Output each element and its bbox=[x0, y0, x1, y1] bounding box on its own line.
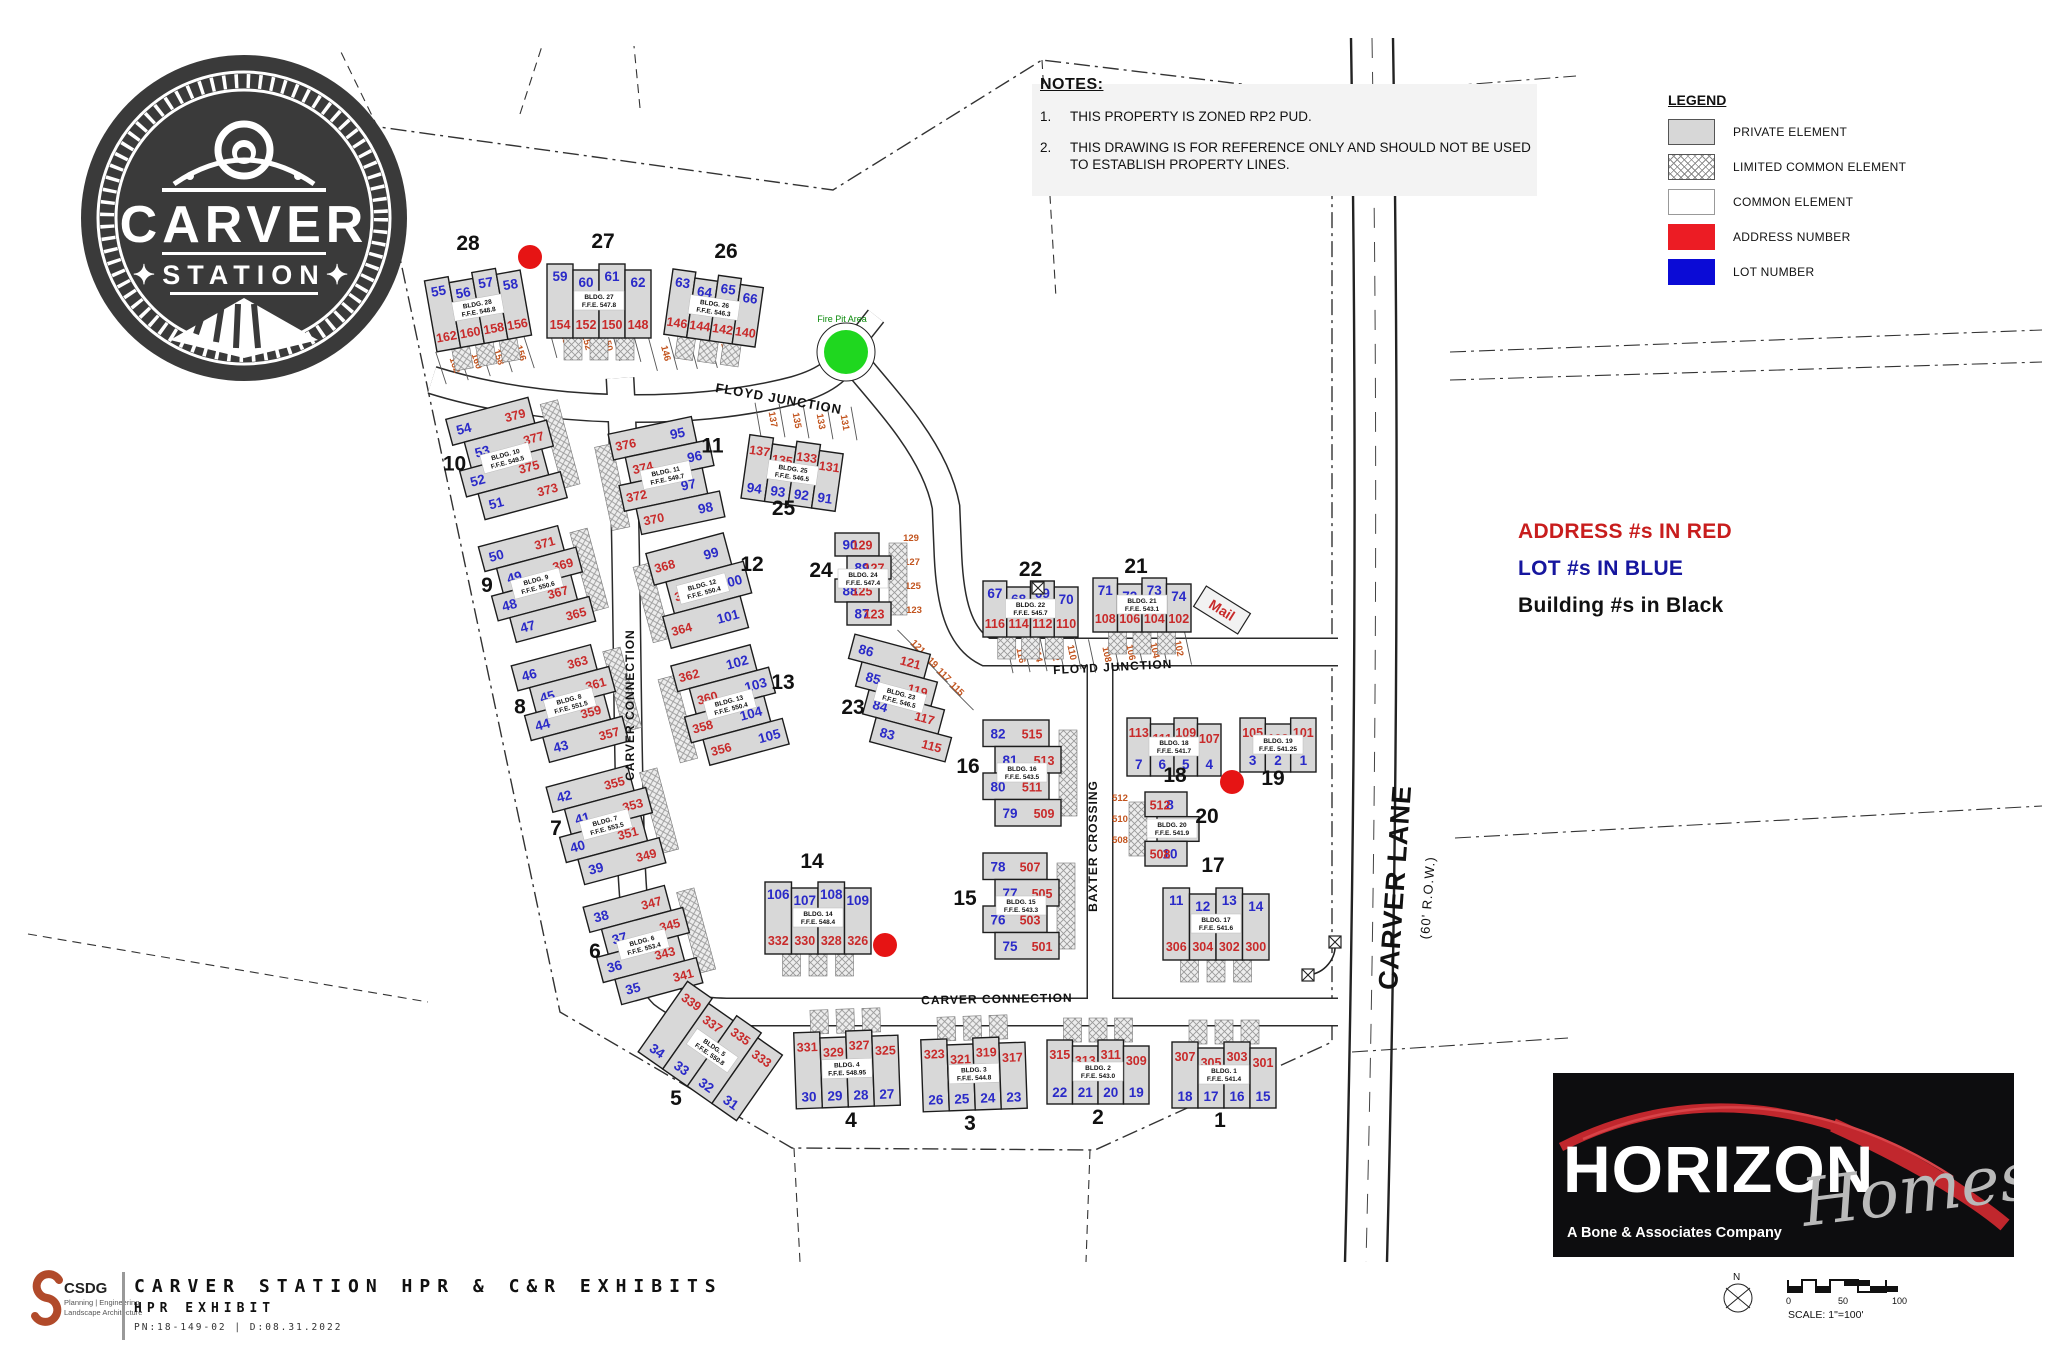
red-dot-marker bbox=[518, 245, 542, 269]
horizon-tagline: A Bone & Associates Company bbox=[1567, 1225, 1782, 1241]
building-26: 63146641446514266140BLDG. 26F.F.E. 546.3 bbox=[661, 269, 764, 369]
parking-stall-number: 512 bbox=[1112, 793, 1128, 804]
legend-label: COMMON ELEMENT bbox=[1733, 195, 1853, 209]
carver-station-logo: CARVER ✦STATION✦ bbox=[78, 52, 410, 384]
parking-stall-line bbox=[649, 338, 658, 371]
ffe-label: F.F.E. 545.7 bbox=[1013, 610, 1048, 617]
parking-stall-line bbox=[851, 407, 857, 440]
color-key-line: Building #s in Black bbox=[1518, 594, 1732, 618]
lot-number: 62 bbox=[630, 275, 645, 290]
lot-number: 66 bbox=[742, 290, 759, 307]
lot-number: 67 bbox=[987, 586, 1002, 601]
address-number: 300 bbox=[1245, 940, 1266, 954]
building-2: 22315213132031119309BLDG. 2F.F.E. 543.0 bbox=[1047, 1018, 1149, 1104]
building-15: 78507775057650375501BLDG. 15F.F.E. 543.3 bbox=[983, 853, 1075, 959]
lot-number: 30 bbox=[801, 1089, 817, 1105]
lot-number: 23 bbox=[1006, 1089, 1022, 1105]
fire-pit-label: Fire Pit Area bbox=[817, 314, 867, 324]
building-number: 24 bbox=[809, 559, 833, 582]
bldg-label: BLDG. 1 bbox=[1211, 1068, 1237, 1075]
legend-row: ADDRESS NUMBER bbox=[1668, 223, 2028, 250]
lot-number: 29 bbox=[827, 1088, 843, 1104]
ffe-label: F.F.E. 547.4 bbox=[846, 580, 881, 587]
lot-number: 70 bbox=[1059, 592, 1074, 607]
lot-number: 71 bbox=[1098, 583, 1114, 598]
address-number: 146 bbox=[666, 315, 689, 332]
ffe-label: F.F.E. 541.25 bbox=[1259, 746, 1297, 753]
building-number: 21 bbox=[1124, 555, 1148, 578]
address-number: 501 bbox=[1032, 940, 1053, 954]
lot-number: 24 bbox=[980, 1090, 996, 1106]
building-number: 9 bbox=[481, 574, 493, 597]
scale-label: SCALE: 1"=100' bbox=[1788, 1309, 1864, 1321]
legend-row: COMMON ELEMENT bbox=[1668, 188, 2028, 215]
blue-swatch bbox=[1668, 259, 1715, 285]
building-number: 7 bbox=[550, 817, 562, 840]
parking-stall-number: 146 bbox=[658, 344, 673, 362]
legend-label: PRIVATE ELEMENT bbox=[1733, 125, 1847, 139]
address-number: 108 bbox=[1095, 612, 1116, 626]
lot-number: 56 bbox=[454, 284, 472, 301]
address-number: 306 bbox=[1166, 940, 1187, 954]
ffe-label: F.F.E. 543.0 bbox=[1081, 1073, 1116, 1080]
csdg-brand: CSDG bbox=[64, 1280, 107, 1297]
color-key-line: ADDRESS #s IN RED bbox=[1518, 520, 1732, 544]
bldg-label: BLDG. 16 bbox=[1007, 766, 1037, 773]
driveway-hatch bbox=[937, 1017, 956, 1042]
driveway-hatch bbox=[783, 952, 801, 976]
driveway-hatch bbox=[1064, 1018, 1082, 1042]
driveway-hatch bbox=[1241, 1020, 1259, 1044]
carver-lane-centerline bbox=[1366, 38, 1376, 1262]
lot-number: 2 bbox=[1274, 753, 1282, 768]
address-number: 129 bbox=[852, 539, 873, 553]
address-number: 110 bbox=[1056, 617, 1076, 631]
ffe-label: F.F.E. 548.95 bbox=[828, 1069, 867, 1077]
driveway-hatch bbox=[1234, 958, 1252, 982]
legend-label: LOT NUMBER bbox=[1733, 265, 1814, 279]
ffe-label: F.F.E. 548.4 bbox=[801, 919, 836, 926]
bldg-label: BLDG. 17 bbox=[1201, 917, 1231, 924]
bldg-label: BLDG. 24 bbox=[848, 572, 878, 579]
building-12: 99368100366101364BLDG. 12F.F.E. 550.4 bbox=[630, 530, 760, 653]
lot-number: 7 bbox=[1135, 757, 1143, 772]
building-number: 6 bbox=[589, 940, 601, 963]
note-number: 1. bbox=[1040, 108, 1070, 125]
building-number: 27 bbox=[591, 230, 614, 253]
address-number: 102 bbox=[1168, 612, 1189, 626]
address-number: 329 bbox=[823, 1045, 844, 1060]
csdg-logo-icon bbox=[28, 1270, 68, 1342]
notes-block: NOTES: 1.THIS PROPERTY IS ZONED RP2 PUD.… bbox=[1040, 76, 1540, 173]
parking-stall-number: 123 bbox=[906, 605, 922, 616]
svg-text:N: N bbox=[1733, 1272, 1740, 1283]
svg-text:50: 50 bbox=[1838, 1296, 1848, 1306]
lot-number: 15 bbox=[1255, 1089, 1271, 1104]
driveway-hatch bbox=[1133, 630, 1151, 654]
address-number: 131 bbox=[818, 459, 841, 476]
survey-line bbox=[28, 934, 428, 1002]
driveway-hatch bbox=[1045, 635, 1063, 659]
address-number: 326 bbox=[847, 934, 868, 948]
building-number: 17 bbox=[1201, 854, 1224, 877]
building-number: 15 bbox=[953, 887, 977, 910]
page: 1621601581561541521501481461441421401371… bbox=[0, 0, 2048, 1365]
csdg-sub1: Planning | Engineering bbox=[64, 1298, 139, 1307]
address-number: 328 bbox=[821, 934, 842, 948]
north-arrow-icon: N bbox=[1724, 1272, 1752, 1312]
carver-lane-edge bbox=[1345, 38, 1355, 1262]
notes-title: NOTES: bbox=[1040, 76, 1540, 94]
bldg-label: BLDG. 19 bbox=[1263, 738, 1293, 745]
driveway-hatch bbox=[810, 1010, 829, 1035]
lot-number: 21 bbox=[1078, 1085, 1094, 1100]
lot-number: 20 bbox=[1103, 1085, 1118, 1100]
lot-number: 106 bbox=[767, 887, 790, 902]
building-number: 13 bbox=[771, 671, 794, 694]
address-number: 137 bbox=[748, 443, 771, 460]
survey-line bbox=[1455, 806, 2042, 838]
lot-number: 27 bbox=[879, 1086, 895, 1102]
survey-line bbox=[794, 1148, 800, 1262]
driveway-hatch bbox=[616, 336, 634, 360]
building-20: 8512951010508BLDG. 20F.F.E. 541.9 bbox=[1129, 792, 1199, 866]
legend-row: PRIVATE ELEMENT bbox=[1668, 118, 2028, 145]
bldg-label: BLDG. 21 bbox=[1127, 598, 1157, 605]
building-number: 19 bbox=[1261, 767, 1284, 790]
address-number: 140 bbox=[734, 324, 757, 341]
address-number: 507 bbox=[1020, 860, 1041, 874]
lot-number: 63 bbox=[674, 274, 691, 291]
building-number: 20 bbox=[1195, 805, 1218, 828]
ffe-label: F.F.E. 543.1 bbox=[1125, 606, 1160, 613]
address-number: 512 bbox=[1150, 798, 1171, 812]
driveway-hatch bbox=[836, 952, 854, 976]
address-number: 319 bbox=[976, 1045, 997, 1060]
building-number: 11 bbox=[701, 435, 724, 458]
lot-number: 11 bbox=[1169, 893, 1184, 908]
footer-divider bbox=[122, 1272, 125, 1340]
driveway-hatch bbox=[1207, 958, 1225, 982]
driveway-hatch bbox=[590, 336, 608, 360]
red-swatch bbox=[1668, 224, 1715, 250]
building-9: 50371493694836747365BLDG. 9F.F.E. 550.6 bbox=[478, 518, 611, 645]
parking-stall-number: 115 bbox=[947, 680, 966, 699]
ffe-label: F.F.E. 541.4 bbox=[1207, 1076, 1242, 1083]
address-number: 142 bbox=[711, 321, 734, 338]
address-number: 503 bbox=[1020, 913, 1041, 927]
address-number: 112 bbox=[1032, 617, 1052, 631]
building-number: 14 bbox=[800, 850, 824, 873]
address-number: 332 bbox=[768, 934, 789, 948]
address-number: 123 bbox=[864, 608, 885, 622]
address-number: 509 bbox=[1034, 807, 1055, 821]
building-number: 25 bbox=[772, 497, 796, 520]
horizon-homes-logo: HORIZON Homes A Bone & Associates Compan… bbox=[1553, 1073, 2014, 1257]
address-number: 114 bbox=[1009, 617, 1029, 631]
parking-stall-number: 137 bbox=[766, 411, 780, 429]
white-swatch bbox=[1668, 189, 1715, 215]
address-number: 107 bbox=[1199, 732, 1220, 746]
survey-line bbox=[1450, 362, 2042, 380]
building-number: 4 bbox=[845, 1109, 857, 1132]
building-number: 23 bbox=[841, 696, 864, 719]
lot-number: 94 bbox=[746, 480, 763, 497]
address-number: 116 bbox=[985, 617, 1005, 631]
parking-stall-number: 129 bbox=[903, 533, 919, 544]
fire-pit-area bbox=[824, 330, 868, 374]
ffe-label: F.F.E. 543.3 bbox=[1004, 907, 1039, 914]
bldg-label: BLDG. 27 bbox=[584, 294, 614, 301]
survey-line bbox=[1086, 1150, 1090, 1262]
building-number: 26 bbox=[714, 240, 737, 263]
building-number: 18 bbox=[1163, 764, 1187, 787]
survey-line bbox=[520, 46, 542, 114]
legend-title: LEGEND bbox=[1668, 92, 2028, 108]
lot-number: 58 bbox=[502, 276, 520, 293]
ffe-label: F.F.E. 541.6 bbox=[1199, 925, 1234, 932]
survey-line bbox=[634, 46, 640, 108]
driveway-hatch bbox=[998, 635, 1016, 659]
lot-number: 60 bbox=[578, 275, 593, 290]
parking-stall-number: 135 bbox=[790, 412, 804, 430]
building-13: 102362103360104358105356BLDG. 13F.F.E. 5… bbox=[655, 642, 789, 773]
lot-number: 65 bbox=[720, 281, 737, 298]
address-number: 304 bbox=[1192, 940, 1213, 954]
parking-stall-line bbox=[779, 404, 785, 437]
legend-row: LOT NUMBER bbox=[1668, 258, 2028, 285]
address-number: 303 bbox=[1227, 1050, 1248, 1064]
red-dot-marker bbox=[1220, 770, 1244, 794]
street-label: CARVER CONNECTION bbox=[623, 629, 637, 780]
legend-row: LIMITED COMMON ELEMENT bbox=[1668, 153, 2028, 180]
lot-number: 17 bbox=[1203, 1089, 1218, 1104]
bldg-label: BLDG. 20 bbox=[1157, 822, 1187, 829]
lot-number: 22 bbox=[1052, 1085, 1067, 1100]
building-16: 82515815138051179509BLDG. 16F.F.E. 543.5 bbox=[983, 720, 1077, 826]
mail-kiosk: Mail bbox=[1194, 586, 1251, 634]
lot-number: 25 bbox=[954, 1091, 970, 1107]
lot-number: 26 bbox=[928, 1092, 944, 1108]
ffe-label: F.F.E. 543.5 bbox=[1005, 774, 1040, 781]
csdg-sub2: Landscape Architecture bbox=[64, 1308, 142, 1317]
address-number: 511 bbox=[1022, 780, 1042, 794]
building-14: 106332107330108328109326BLDG. 14F.F.E. 5… bbox=[765, 882, 871, 976]
gray-swatch bbox=[1668, 119, 1715, 145]
address-number: 327 bbox=[849, 1038, 870, 1053]
bldg-label: BLDG. 14 bbox=[803, 911, 833, 918]
lot-number: 109 bbox=[846, 893, 869, 908]
driveway-hatch bbox=[1181, 958, 1199, 982]
scale-bar: 0 50 100 SCALE: 1"=100' bbox=[1786, 1280, 1907, 1321]
address-number: 325 bbox=[875, 1043, 896, 1058]
lot-number: 82 bbox=[990, 726, 1005, 741]
lot-number: 107 bbox=[793, 893, 816, 908]
svg-text:0: 0 bbox=[1786, 1296, 1791, 1306]
address-number: 154 bbox=[550, 318, 571, 332]
building-number: 12 bbox=[740, 553, 763, 576]
building-number: 1 bbox=[1214, 1109, 1226, 1132]
building-number: 28 bbox=[456, 232, 480, 255]
lot-number: 55 bbox=[430, 282, 448, 299]
legend-label: ADDRESS NUMBER bbox=[1733, 230, 1851, 244]
address-number: 311 bbox=[1101, 1048, 1121, 1062]
logo-line1: CARVER bbox=[120, 196, 369, 254]
building-number: 16 bbox=[956, 755, 979, 778]
legend: LEGEND PRIVATE ELEMENTLIMITED COMMON ELE… bbox=[1668, 92, 2028, 285]
building-11: 95376963749737298370BLDG. 11F.F.E. 549.7 bbox=[592, 414, 724, 540]
driveway-hatch bbox=[809, 952, 827, 976]
building-7: 42355413534035139349BLDG. 7F.F.E. 553.5 bbox=[546, 758, 681, 887]
lot-number: 92 bbox=[793, 486, 810, 503]
note-item: 2.THIS DRAWING IS FOR REFERENCE ONLY AND… bbox=[1040, 139, 1540, 173]
lot-number: 28 bbox=[853, 1087, 869, 1103]
driveway-hatch bbox=[564, 336, 582, 360]
parking-stall-number: 125 bbox=[905, 581, 922, 592]
driveway-hatch bbox=[963, 1016, 982, 1041]
sheet-title: CARVER STATION HPR & C&R EXHIBITS bbox=[134, 1276, 723, 1297]
legend-label: LIMITED COMMON ELEMENT bbox=[1733, 160, 1906, 174]
svg-text:100: 100 bbox=[1892, 1296, 1907, 1306]
lot-number: 108 bbox=[820, 887, 843, 902]
carver-lane-edge bbox=[1387, 38, 1397, 1262]
lot-number: 57 bbox=[477, 274, 494, 291]
address-number: 144 bbox=[689, 318, 712, 335]
building-19: 310521031101BLDG. 19F.F.E. 541.25 bbox=[1240, 718, 1316, 772]
note-text: THIS DRAWING IS FOR REFERENCE ONLY AND S… bbox=[1070, 139, 1540, 173]
parking-stall-number: 133 bbox=[814, 413, 828, 431]
driveway-hatch bbox=[989, 1015, 1008, 1040]
color-key-line: LOT #s IN BLUE bbox=[1518, 557, 1732, 581]
lot-number: 75 bbox=[1002, 939, 1018, 954]
address-number: 152 bbox=[576, 318, 597, 332]
driveway-hatch bbox=[1158, 630, 1176, 654]
lot-number: 78 bbox=[990, 859, 1006, 874]
driveway-hatch bbox=[889, 543, 907, 615]
address-number: 508 bbox=[1150, 848, 1171, 862]
address-number: 515 bbox=[1022, 727, 1043, 741]
note-item: 1.THIS PROPERTY IS ZONED RP2 PUD. bbox=[1040, 108, 1540, 125]
lot-number: 61 bbox=[604, 269, 620, 284]
lot-number: 59 bbox=[552, 269, 567, 284]
lot-number: 4 bbox=[1205, 757, 1213, 772]
address-number: 309 bbox=[1126, 1054, 1147, 1068]
parking-stall-number: 510 bbox=[1112, 814, 1128, 825]
street-label: CARVER LANE bbox=[1373, 784, 1417, 991]
driveway-hatch bbox=[1115, 1018, 1133, 1042]
logo-line2: ✦STATION✦ bbox=[133, 260, 356, 290]
lot-number: 91 bbox=[816, 490, 833, 507]
bldg-label: BLDG. 2 bbox=[1085, 1065, 1111, 1072]
address-number: 317 bbox=[1002, 1050, 1023, 1065]
lot-number: 18 bbox=[1177, 1089, 1193, 1104]
parking-stall-number: 508 bbox=[1112, 835, 1128, 846]
street-label: (60' R.O.W.) bbox=[1417, 856, 1438, 940]
ffe-label: F.F.E. 541.7 bbox=[1157, 748, 1192, 755]
address-number: 315 bbox=[1049, 1048, 1070, 1062]
survey-line bbox=[1450, 330, 2042, 352]
building-number: 22 bbox=[1019, 558, 1042, 581]
driveway-hatch bbox=[862, 1008, 881, 1033]
street-label: CARVER CONNECTION bbox=[921, 991, 1073, 1008]
driveway-hatch bbox=[836, 1009, 855, 1034]
driveway-hatch bbox=[1215, 1020, 1233, 1044]
building-28: 55162561605715858156BLDG. 28F.F.E. 548.8 bbox=[424, 264, 535, 373]
address-number: 302 bbox=[1219, 940, 1240, 954]
driveway-hatch bbox=[1109, 630, 1127, 654]
building-number: 3 bbox=[964, 1112, 976, 1135]
survey-line bbox=[1352, 1038, 1568, 1052]
address-number: 323 bbox=[924, 1047, 945, 1062]
address-number: 330 bbox=[794, 934, 815, 948]
lot-number: 74 bbox=[1171, 589, 1187, 604]
note-number: 2. bbox=[1040, 139, 1070, 173]
color-key: ADDRESS #s IN REDLOT #s IN BLUEBuilding … bbox=[1518, 520, 1732, 631]
bldg-label: BLDG. 4 bbox=[834, 1062, 860, 1070]
ffe-label: F.F.E. 547.8 bbox=[582, 302, 617, 309]
driveway-hatch bbox=[1189, 1020, 1207, 1044]
hatch-swatch bbox=[1668, 154, 1715, 180]
lot-number: 3 bbox=[1249, 753, 1257, 768]
building-number: 8 bbox=[514, 696, 526, 719]
lot-number: 1 bbox=[1300, 753, 1308, 768]
lot-number: 12 bbox=[1195, 899, 1210, 914]
lot-number: 19 bbox=[1129, 1085, 1144, 1100]
address-number: 150 bbox=[602, 318, 623, 332]
building-1: 18307173051630315301BLDG. 1F.F.E. 541.4 bbox=[1172, 1020, 1276, 1108]
note-text: THIS PROPERTY IS ZONED RP2 PUD. bbox=[1070, 108, 1312, 125]
bldg-label: BLDG. 15 bbox=[1006, 899, 1036, 906]
building-24: 90129891278812587123BLDG. 24F.F.E. 547.4 bbox=[835, 533, 907, 625]
driveway-hatch bbox=[1022, 635, 1040, 659]
address-number: 331 bbox=[797, 1040, 818, 1055]
building-number: 2 bbox=[1092, 1106, 1104, 1129]
building-number: 5 bbox=[670, 1087, 682, 1110]
driveway-hatch bbox=[1089, 1018, 1107, 1042]
street-label: BAXTER CROSSING bbox=[1086, 780, 1100, 912]
ffe-label: F.F.E. 544.8 bbox=[957, 1074, 992, 1082]
address-number: 301 bbox=[1253, 1056, 1274, 1070]
sheet-meta: PN:18-149-02 | D:08.31.2022 bbox=[134, 1322, 342, 1333]
lot-number: 14 bbox=[1248, 899, 1264, 914]
red-dot-marker bbox=[873, 933, 897, 957]
address-number: 307 bbox=[1175, 1050, 1196, 1064]
ffe-label: F.F.E. 541.9 bbox=[1155, 830, 1190, 837]
lot-number: 16 bbox=[1229, 1089, 1245, 1104]
building-17: 11306123041330214300BLDG. 17F.F.E. 541.6 bbox=[1163, 888, 1269, 982]
lot-number: 13 bbox=[1222, 893, 1238, 908]
address-number: 148 bbox=[628, 318, 649, 332]
building-number: 10 bbox=[443, 453, 466, 476]
bldg-label: BLDG. 3 bbox=[961, 1067, 987, 1075]
building-3: 26323253212431923317BLDG. 3F.F.E. 544.8 bbox=[920, 1014, 1027, 1112]
bldg-label: BLDG. 22 bbox=[1016, 602, 1046, 609]
sheet-subtitle: HPR EXHIBIT bbox=[134, 1301, 275, 1316]
lot-number: 79 bbox=[1002, 806, 1017, 821]
address-number: 113 bbox=[1129, 726, 1149, 740]
bldg-label: BLDG. 18 bbox=[1159, 740, 1189, 747]
